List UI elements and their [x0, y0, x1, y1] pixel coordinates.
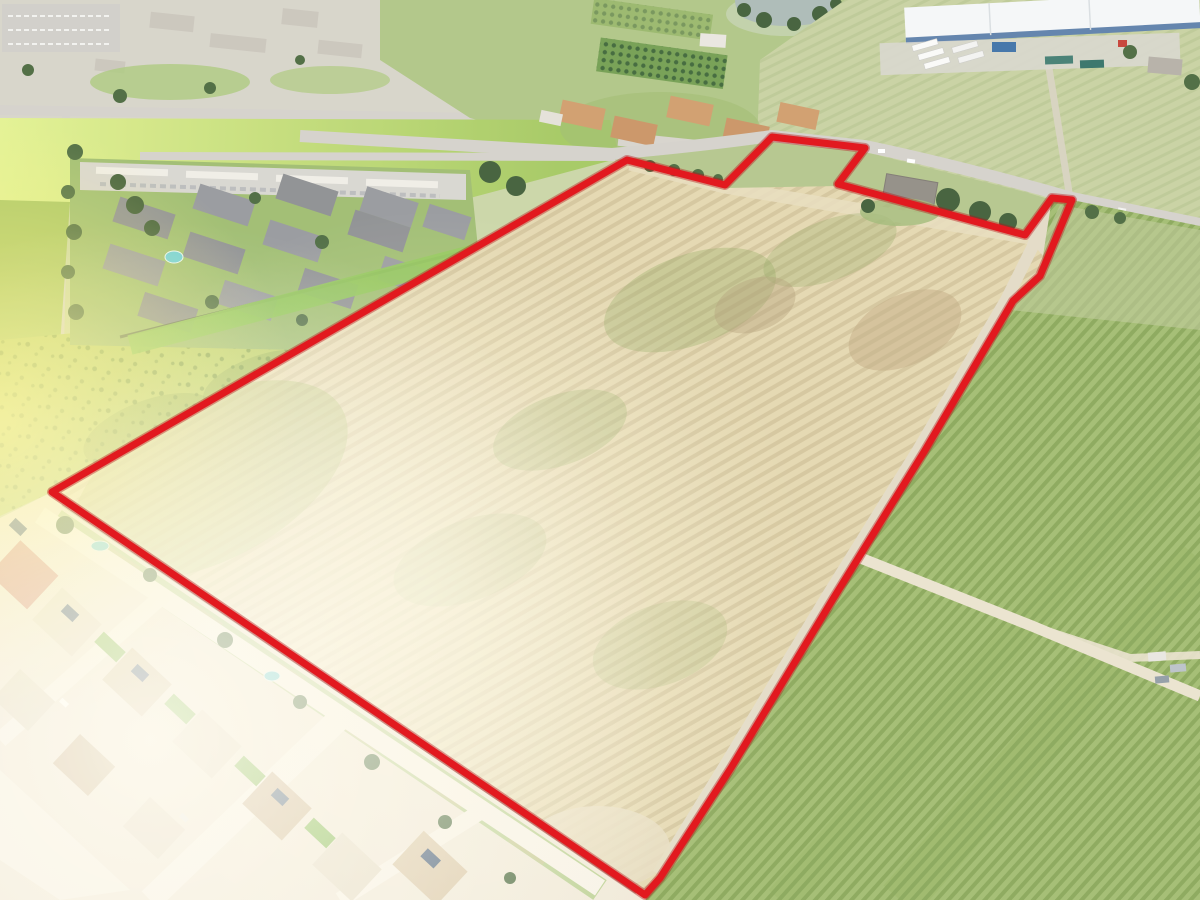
- aerial-property-photo: [0, 0, 1200, 900]
- aerial-photo-canvas: [0, 0, 1200, 900]
- sun-glare-overlay: [0, 0, 1200, 900]
- haze: [0, 0, 1200, 900]
